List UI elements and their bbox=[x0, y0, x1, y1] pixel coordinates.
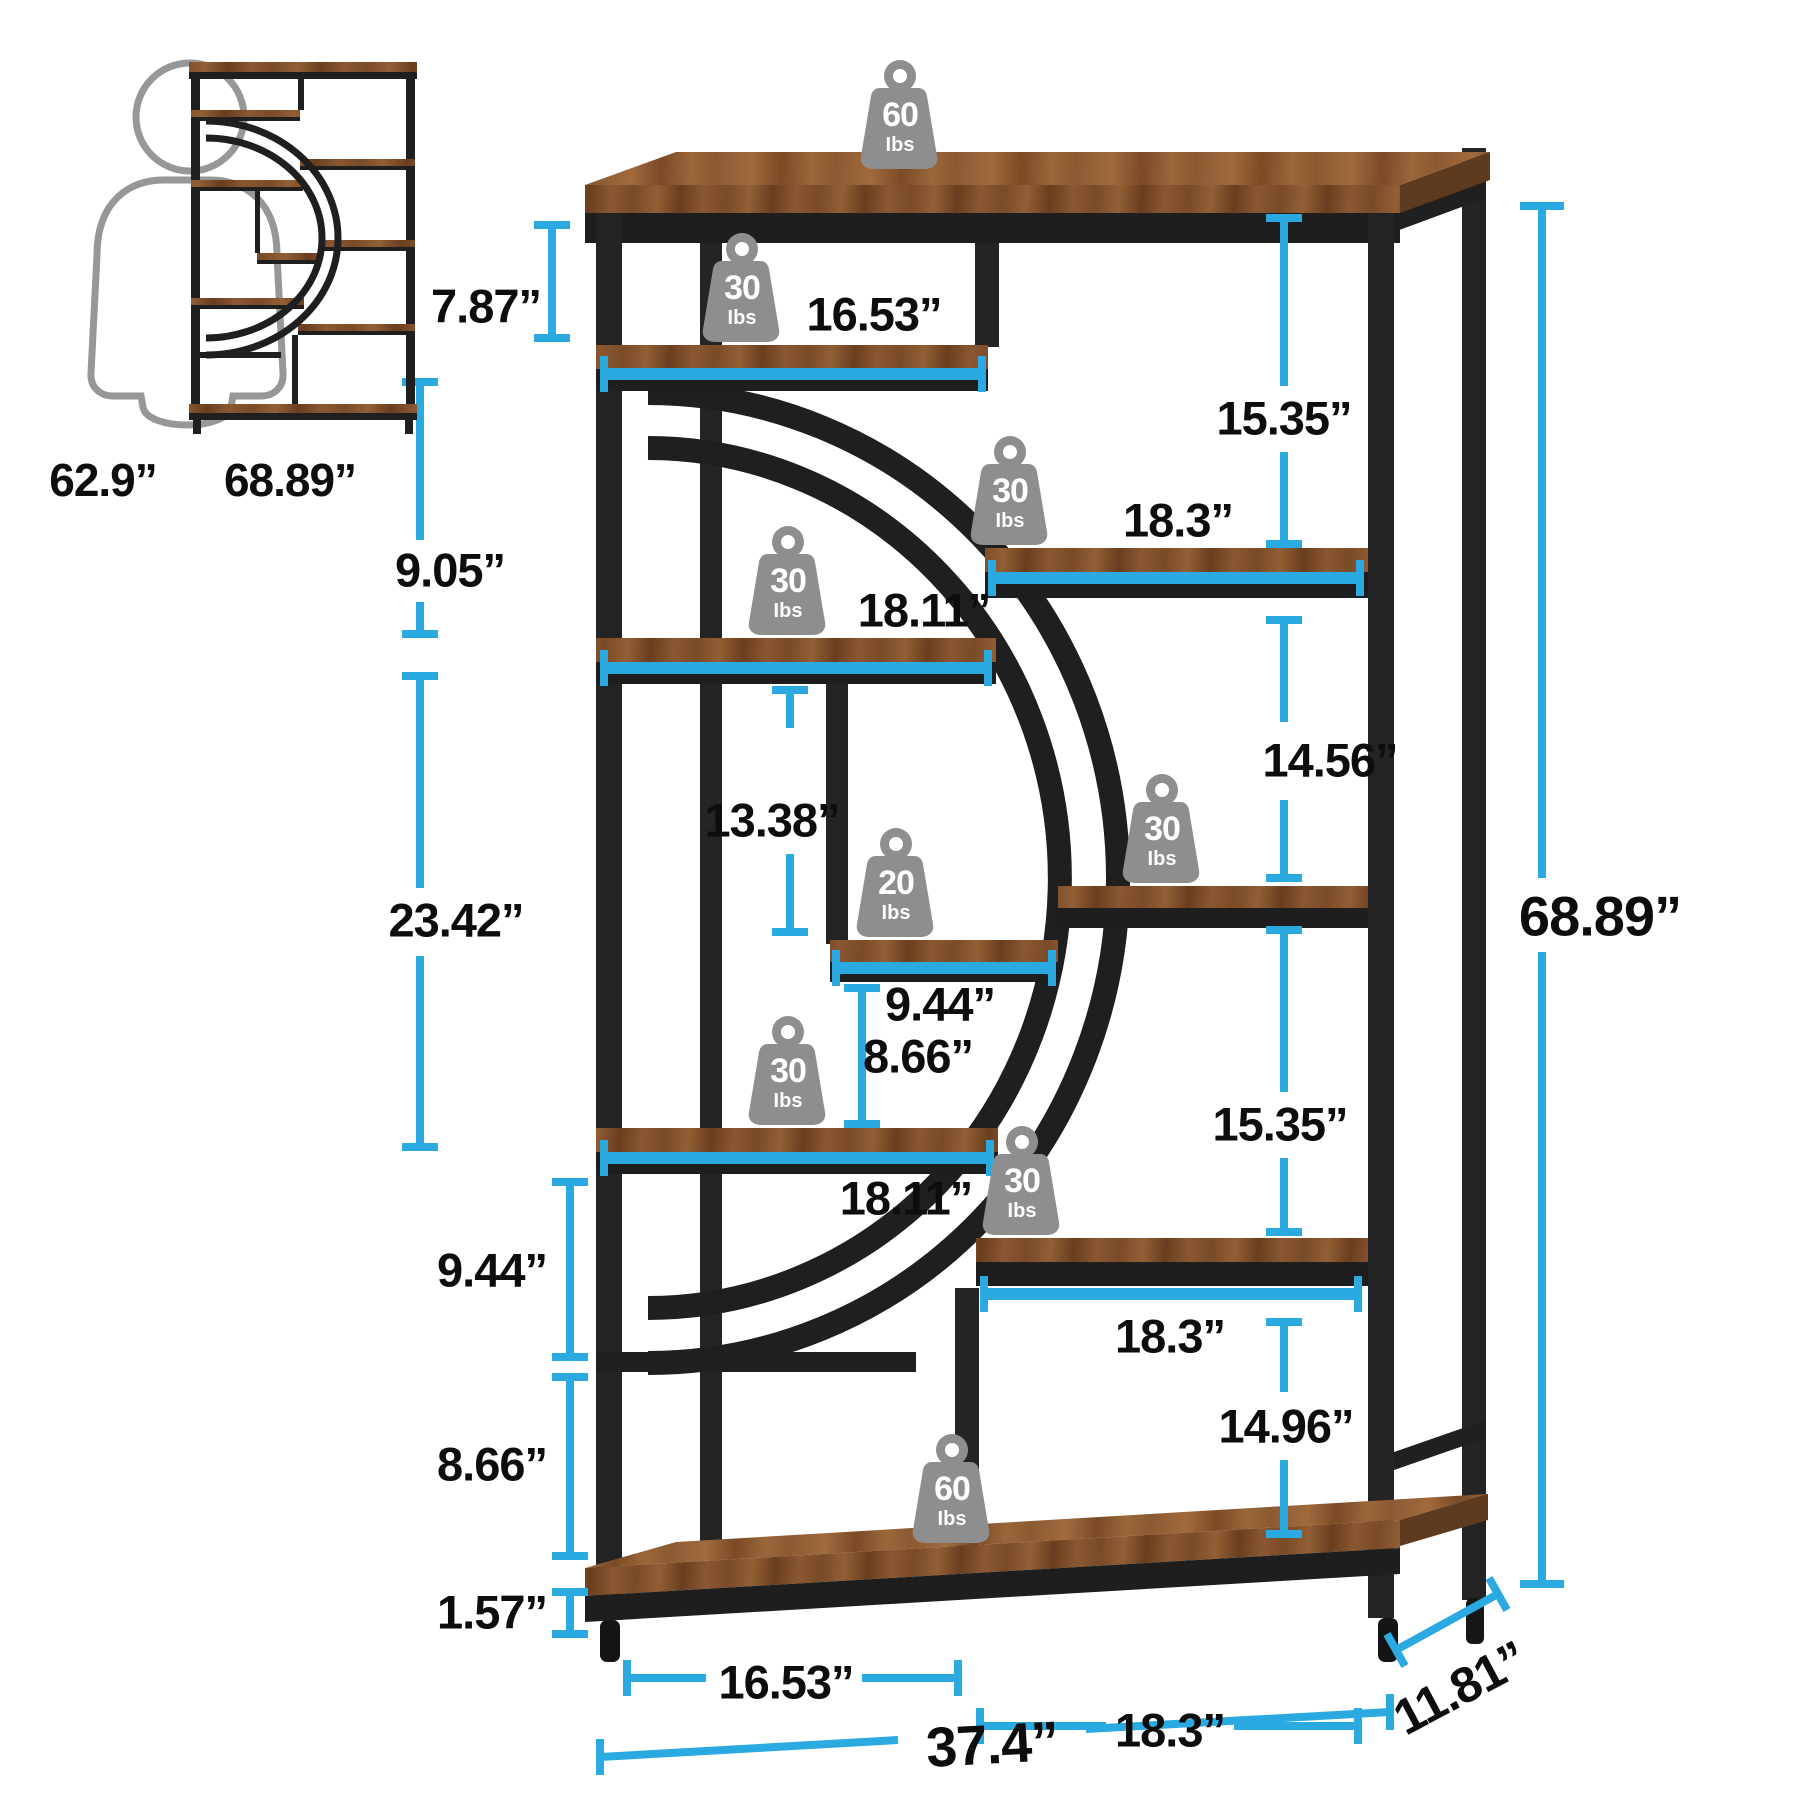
bookcase-thumbnail bbox=[183, 52, 423, 444]
weight-badge-top: 60 Ibs bbox=[848, 58, 952, 172]
weight-value: 30 bbox=[958, 472, 1062, 511]
weight-value: 20 bbox=[844, 864, 948, 903]
weight-value: 60 bbox=[900, 1470, 1004, 1509]
shelf-mid-left bbox=[596, 638, 996, 684]
dim-label-13-38: 13.38” bbox=[704, 793, 839, 848]
weight-unit: Ibs bbox=[736, 1090, 840, 1113]
shelf-lower-right bbox=[976, 1238, 1368, 1286]
weight-unit: Ibs bbox=[958, 510, 1062, 533]
dim-label-right-14-96: 14.96” bbox=[1218, 1399, 1353, 1454]
weight-unit: Ibs bbox=[970, 1200, 1074, 1223]
upper-center-divider bbox=[975, 243, 999, 347]
weight-unit: Ibs bbox=[848, 134, 952, 157]
weight-unit: Ibs bbox=[844, 902, 948, 925]
dim-label-left-8-66: 8.66” bbox=[437, 1437, 547, 1492]
dim-label-bottom-left-span: 16.53” bbox=[718, 1655, 853, 1710]
dim-label-left-9-44: 9.44” bbox=[437, 1243, 547, 1298]
dim-label-left-7-87: 7.87” bbox=[431, 279, 541, 334]
dim-label-small-shelf-width: 9.44” bbox=[885, 977, 995, 1032]
weight-value: 30 bbox=[690, 269, 794, 308]
weight-unit: Ibs bbox=[690, 307, 794, 330]
dim-label-shelf-upper-right: 18.3” bbox=[1123, 493, 1233, 548]
product-dimension-diagram: 60 Ibs 30 Ibs 30 Ibs 30 Ibs 20 Ibs bbox=[0, 0, 1800, 1800]
weight-badge-mid-left: 30 Ibs bbox=[736, 524, 840, 638]
weight-badge-upper-right: 30 Ibs bbox=[958, 434, 1062, 548]
weight-badge-center-small: 20 Ibs bbox=[844, 826, 948, 940]
dim-label-left-9-05: 9.05” bbox=[395, 543, 505, 598]
dim-label-right-14-56: 14.56” bbox=[1262, 733, 1397, 788]
weight-value: 30 bbox=[970, 1162, 1074, 1201]
dim-label-right-15-35-lower: 15.35” bbox=[1212, 1097, 1347, 1152]
thumbnail-height-label: 68.89” bbox=[224, 453, 356, 507]
dim-label-shelf-lower-right: 18.3” bbox=[1115, 1309, 1225, 1364]
dim-label-mid-8-66: 8.66” bbox=[863, 1029, 973, 1084]
shelf-mid-right bbox=[1058, 886, 1368, 928]
weight-badge-lower-left: 30 Ibs bbox=[736, 1014, 840, 1128]
dim-label-right-15-35-upper: 15.35” bbox=[1216, 391, 1351, 446]
top-shelf-slab bbox=[585, 152, 1490, 243]
arc-bottom-rail bbox=[596, 1352, 916, 1372]
weight-value: 30 bbox=[736, 562, 840, 601]
dim-label-overall-height: 68.89” bbox=[1519, 884, 1681, 949]
dim-label-bottom-right-span: 18.3” bbox=[1115, 1703, 1225, 1758]
weight-badge-lower-right: 30 Ibs bbox=[970, 1124, 1074, 1238]
weight-badge-bottom: 60 Ibs bbox=[900, 1432, 1004, 1546]
dim-label-left-1-57: 1.57” bbox=[437, 1585, 547, 1640]
dim-label-overall-width: 37.4” bbox=[924, 1708, 1059, 1780]
weight-badge-mid-right: 30 Ibs bbox=[1110, 772, 1214, 886]
weight-value: 30 bbox=[1110, 810, 1214, 849]
person-height-label: 62.9” bbox=[49, 453, 157, 507]
weight-value: 60 bbox=[848, 96, 952, 135]
left-post bbox=[596, 213, 622, 1662]
dim-label-left-23-42: 23.42” bbox=[388, 893, 523, 948]
shelf-lower-left bbox=[596, 1128, 998, 1174]
weight-unit: Ibs bbox=[1110, 848, 1214, 871]
right-post bbox=[1368, 213, 1398, 1662]
weight-unit: Ibs bbox=[736, 600, 840, 623]
weight-value: 30 bbox=[736, 1052, 840, 1091]
dim-label-shelf-upper-left: 16.53” bbox=[806, 287, 941, 342]
weight-unit: Ibs bbox=[900, 1508, 1004, 1531]
dim-label-shelf-lower-left: 18.11” bbox=[840, 1171, 973, 1226]
dim-label-shelf-mid-left: 18.11” bbox=[858, 583, 991, 638]
weight-badge-upper-left: 30 Ibs bbox=[690, 231, 794, 345]
